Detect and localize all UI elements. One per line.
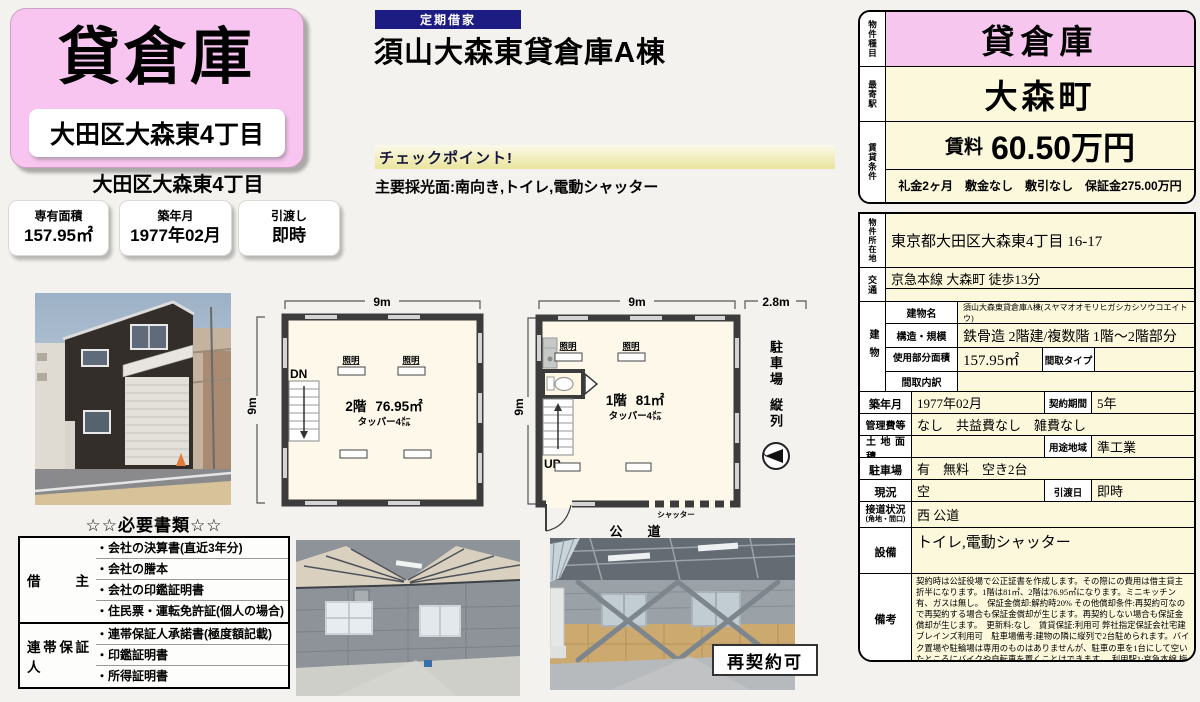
- lighting-note: 主要採光面:南向き,トイレ,電動シャッター: [375, 176, 658, 197]
- plan1f-side-dim: 2.8m: [762, 295, 789, 309]
- area-label: 専有面積: [34, 209, 82, 225]
- location-subtitle: 大田区大森東4丁目: [0, 168, 356, 197]
- info-box-area: 専有面積 157.95㎡: [8, 200, 109, 256]
- summary-panel: 物件種目 貸倉庫 最寄駅 大森町 賃貸条件 賃料 60.50万円 礼金2ヶ月 敷…: [858, 10, 1196, 204]
- built-label: 築年月: [157, 209, 193, 225]
- layout-type-label: 間取タイプ: [1043, 348, 1095, 371]
- handover-label: 引渡し: [271, 209, 307, 225]
- notes-label: 備考: [869, 608, 903, 627]
- plan1f-width-dim: 9m: [628, 295, 645, 309]
- detail-access-header: 交通: [860, 268, 886, 301]
- equipment-label: 設備: [869, 541, 903, 560]
- plan1f-shutter-label: シャッター: [657, 509, 695, 519]
- rent-value: 60.50万円: [991, 123, 1135, 169]
- plan2f-ceiling-height: タッパー4㍍: [358, 416, 411, 428]
- tenant-doc-item: ・会社の決算書(直近3年分): [96, 538, 288, 559]
- parking-tandem-label: 縦列: [766, 398, 785, 438]
- plan2f-room-label: 2階76.95㎡: [345, 398, 423, 414]
- guarantor-doc-item: ・所得証明書: [96, 666, 288, 687]
- tenant-doc-item: ・会社の謄本: [96, 559, 288, 580]
- plan1f-light-label: 照明: [622, 341, 640, 351]
- tenant-doc-item: ・住民票・運転免許証(個人の場合): [96, 601, 288, 622]
- fixed-term-lease-badge: 定期借家: [375, 10, 521, 29]
- detail-table: 物件所在地 東京都大田区大森東4丁目 16-17 交通 京急本線 大森町 徒歩1…: [858, 212, 1196, 662]
- layout-detail-value: [958, 372, 1194, 391]
- detail-access: 京急本線 大森町 徒歩13分: [886, 268, 1194, 289]
- parking-area-label: 駐車場: [766, 340, 785, 396]
- layout-detail-label: 間取内訳: [886, 372, 958, 391]
- required-documents-table: 借主 ・会社の決算書(直近3年分) ・会社の謄本 ・会社の印鑑証明書 ・住民票・…: [18, 536, 290, 689]
- term-label: 契約期間: [1045, 392, 1092, 413]
- property-type-title: 貸倉庫: [11, 15, 303, 102]
- location-banner: 大田区大森東4丁目: [29, 109, 285, 157]
- property-type-box: 貸倉庫 大田区大森東4丁目: [10, 8, 304, 168]
- road-label-sub: (角地・間口): [866, 516, 906, 524]
- fees-value: なし 共益費なし 雑費なし: [912, 414, 1194, 435]
- renewal-allowed-badge: 再契約可: [712, 644, 818, 676]
- info-box-built: 築年月 1977年02月: [119, 200, 232, 256]
- handover-row-label: 引渡日: [1048, 482, 1089, 499]
- plan2f-light-label: 照明: [402, 355, 420, 365]
- plan2f-width-dim: 9m: [373, 295, 390, 309]
- plan1f-light-label: 照明: [559, 341, 577, 351]
- road-label: 接道状況: [866, 505, 906, 516]
- term-value: 5年: [1092, 392, 1194, 413]
- guarantor-doc-item: ・連帯保証人承諾書(極度額記載): [96, 624, 288, 645]
- interior-photo-1: [296, 540, 520, 696]
- notes-text: 契約時は公証役場で公正証書を作成します。その際にの費用は借主貸主折半になります。…: [912, 574, 1194, 660]
- equipment-value: トイレ,電動シャッター: [912, 528, 1194, 573]
- lease-conditions: 礼金2ヶ月 敷金なし 敷引なし 保証金275.00万円: [886, 170, 1194, 201]
- used-area-value: 157.95㎡: [958, 348, 1043, 371]
- parking-row-label: 駐車場: [863, 459, 908, 478]
- plan1f-height-dim: 9m: [512, 398, 526, 415]
- used-area-label: 使用部分面積: [886, 348, 958, 371]
- property-flyer: 貸倉庫 大田区大森東4丁目 大田区大森東4丁目 専有面積 157.95㎡ 築年月…: [0, 0, 1200, 702]
- parking-row-value: 有 無料 空き2台: [912, 458, 1194, 479]
- detail-location: 東京都大田区大森東4丁目 16-17: [886, 214, 1194, 267]
- tenant-label: 借主: [20, 538, 96, 622]
- tenant-doc-item: ・会社の印鑑証明書: [96, 580, 288, 601]
- detail-location-header: 物件所在地: [860, 214, 886, 267]
- plan2f-stairs-label: DN: [290, 367, 307, 381]
- guarantor-doc-item: ・印鑑証明書: [96, 645, 288, 666]
- summary-type-header: 物件種目: [860, 12, 886, 66]
- summary-station-value: 大森町: [886, 67, 1194, 121]
- structure-value: 鉄骨造 2階建/複数階 1階〜2階部分: [958, 324, 1194, 347]
- detail-access-2: [886, 289, 1194, 301]
- built-row-value: 1977年02月: [912, 392, 1045, 413]
- handover-value: 即時: [272, 225, 306, 247]
- north-arrow-icon: [763, 443, 789, 469]
- plan2f-height-dim: 9m: [245, 397, 259, 414]
- plan1f-road-label: 公 道: [609, 524, 666, 539]
- guarantor-label: 連帯保証人: [20, 624, 96, 687]
- structure-label: 構造・規模: [886, 324, 958, 347]
- layout-type-value: [1095, 348, 1194, 371]
- summary-station-header: 最寄駅: [860, 67, 886, 121]
- built-row-label: 築年月: [863, 393, 908, 412]
- rent-label: 賃料: [945, 132, 983, 159]
- zone-value: 準工業: [1092, 436, 1194, 457]
- exterior-photo: [35, 293, 231, 505]
- floorplan-2f: 9m 9m DN 照明 照明 2階76.95㎡: [243, 293, 488, 518]
- plan1f-room-label: 1階81㎡: [606, 392, 665, 408]
- handover-row-value: 即時: [1092, 480, 1194, 501]
- plan2f-light-label: 照明: [342, 355, 360, 365]
- building-name: 須山大森東貸倉庫A棟(スヤマオオモリヒガシカシソウコエイトウ): [958, 302, 1194, 323]
- status-row-label: 現況: [869, 481, 903, 500]
- summary-type-value: 貸倉庫: [886, 12, 1194, 66]
- area-value: 157.95㎡: [24, 225, 93, 247]
- land-value: [912, 436, 1045, 457]
- built-value: 1977年02月: [130, 225, 221, 247]
- checkpoint-bar: チェックポイント!: [375, 145, 835, 169]
- plan1f-ceiling-height: タッパー4㍍: [609, 410, 662, 422]
- info-box-handover: 引渡し 即時: [238, 200, 340, 256]
- detail-building-header: 建物: [860, 302, 886, 391]
- summary-terms-header: 賃貸条件: [860, 122, 886, 202]
- road-value: 西 公道: [912, 502, 1194, 527]
- zone-label: 用途地域: [1045, 436, 1092, 457]
- status-row-value: 空: [912, 480, 1045, 501]
- building-name-label: 建物名: [886, 302, 958, 323]
- page-title: 須山大森東貸倉庫A棟: [374, 29, 666, 71]
